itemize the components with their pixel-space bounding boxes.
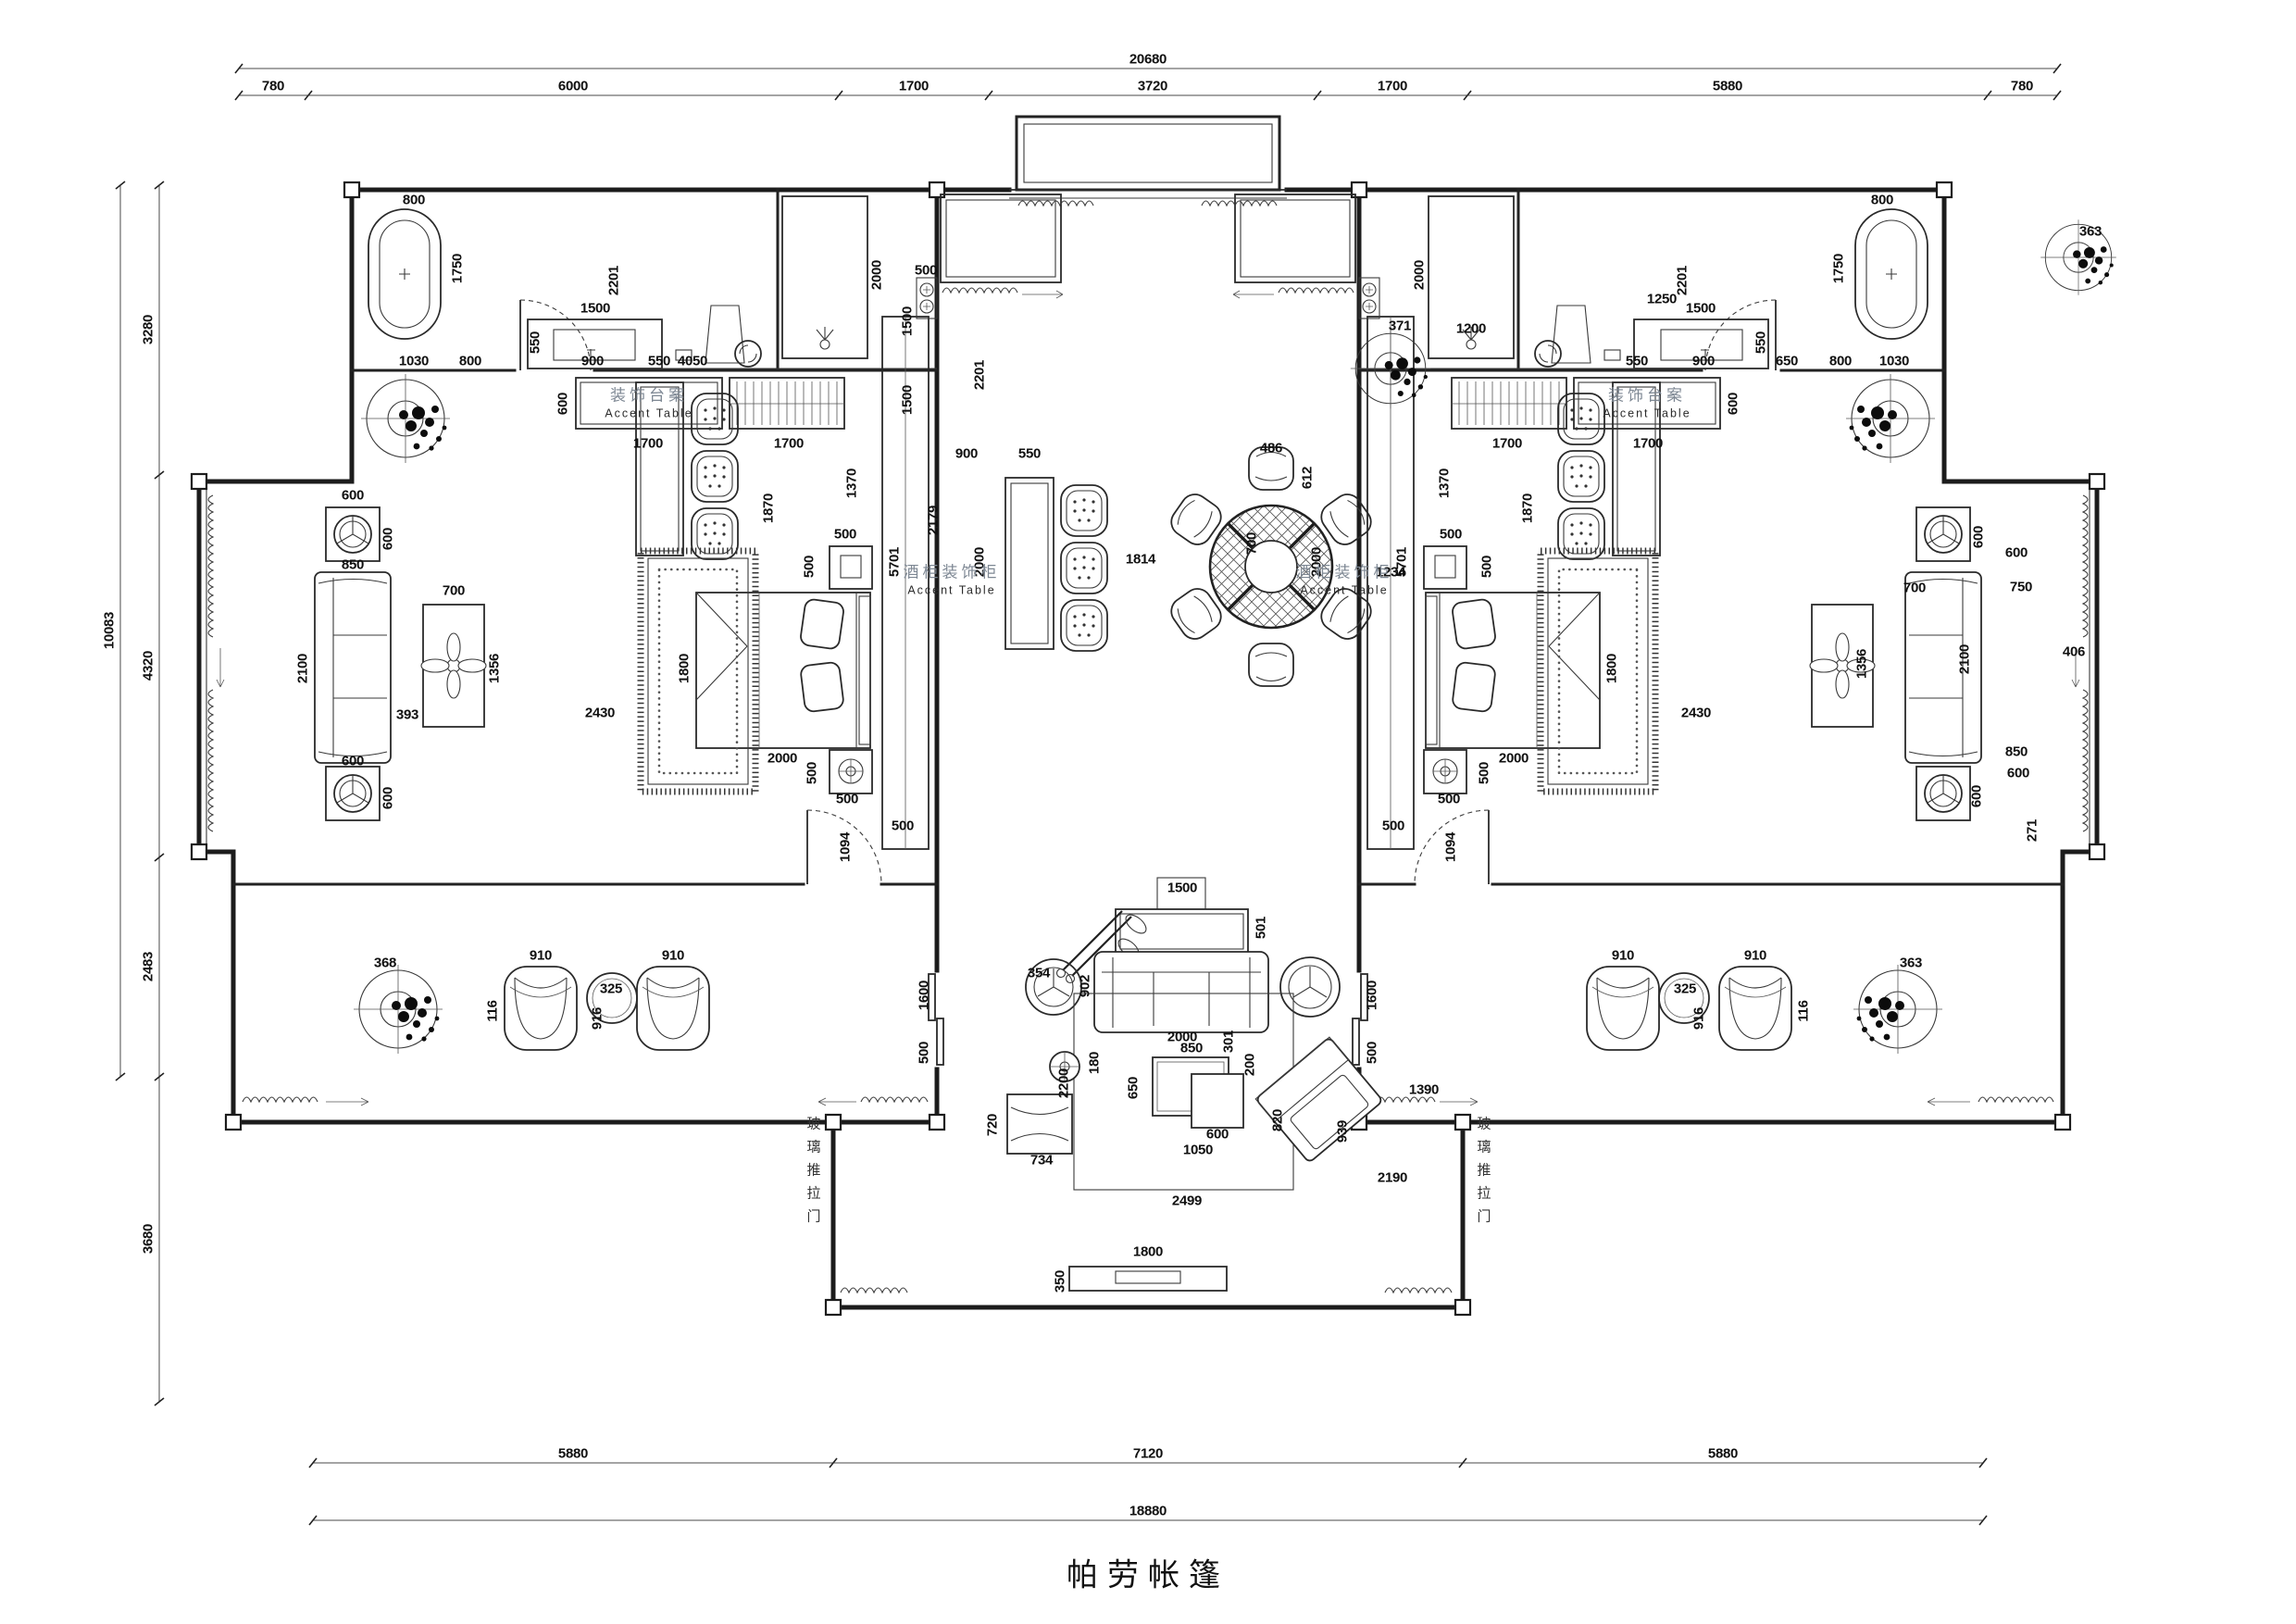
dimension-left_corridor: 500 [834,527,856,543]
dimension-lounge: 1050 [1183,1143,1213,1158]
dimension-left_wing: 910 [662,948,684,964]
dimension-right_bath: 650 [1776,354,1798,369]
dimension-left_bath: 1700 [633,436,663,452]
dimension-left_bath: 2000 [869,260,885,290]
dimension-terrace: 350 [1053,1270,1068,1293]
dimension-right_bed: 500 [1479,556,1495,578]
dimension-lounge: 354 [1028,966,1050,981]
dimension-left_corridor: 1094 [838,832,854,862]
dimension-right_bed: 2000 [1499,751,1529,767]
dimension-left_bed: 500 [836,792,858,807]
dimension-left_wing: 325 [600,981,622,997]
dimension-right_bay: 1356 [1854,649,1870,679]
dimension-left_bay: 1356 [487,654,503,683]
dimension-lounge: 850 [1180,1041,1203,1056]
dimension-left_chain: 4320 [141,651,156,681]
drawing-title: 帕劳帐篷 [1067,1550,1229,1595]
dimension-top_chain: 1700 [899,79,929,94]
dimension-left_chain: 3280 [141,315,156,344]
dimension-right_bath: 1500 [1686,301,1716,317]
dimension-right_bath: 550 [1753,331,1769,354]
dimension-left_bay: 600 [342,488,364,504]
dimension-center_hall: 2201 [972,360,988,390]
dimension-right_bath: 600 [1726,393,1741,415]
dimension-right_corridor: 1370 [1437,468,1453,498]
room-label: 酒柜装饰柜Accent Table [1296,559,1393,597]
dimension-left_chain: 10083 [102,612,118,649]
dimension-left_bath: 2201 [606,266,622,295]
dimension-top_chain: 780 [2011,79,2033,94]
dimension-lounge: 720 [985,1114,1001,1136]
dimension-left_bed: 500 [802,556,817,578]
dimension-lounge: 1390 [1409,1082,1439,1098]
dimension-right_bath: 363 [2079,224,2102,240]
room-label: 装饰台案Accent Table [1603,382,1691,420]
dimension-center_hall: 900 [955,446,978,462]
dimension-right_bay: 750 [2010,580,2032,595]
dimension-bottom_chain: 5880 [558,1446,588,1462]
dimension-lounge: 650 [1126,1077,1142,1099]
dimension-left_bath: 800 [403,193,425,208]
dimension-left_bay: 700 [443,583,465,599]
dimension-right_corridor: 1094 [1443,832,1459,862]
glass-sliding-door-label: 玻璃推拉门 [1474,1117,1493,1232]
dimension-right_bay: 600 [2005,545,2028,561]
dimension-right_corridor: 550 [1626,354,1648,369]
dimension-lounge: 180 [1087,1052,1103,1074]
dimension-left_wing: 916 [590,1007,605,1030]
dimension-lounge: 600 [1206,1127,1229,1143]
dimension-lounge: 2499 [1172,1193,1202,1209]
dimension-right_bay: 271 [2025,819,2040,842]
dimension-right_corridor: 500 [1440,527,1462,543]
dimension-center_hall: 1500 [900,306,916,336]
dimension-lounge: 820 [1270,1109,1286,1131]
dimension-lounge: 301 [1221,1031,1237,1053]
dimension-lounge: 1500 [1167,881,1197,896]
dimension-top_chain: 6000 [558,79,588,94]
dimension-left_bath: 550 [528,331,543,354]
dimension-left_corridor: 900 [581,354,604,369]
dimension-left_chain: 3680 [141,1224,156,1254]
dimension-bottom_chain: 18880 [1129,1504,1167,1519]
dimension-top_chain: 780 [262,79,284,94]
dimension-left_bed: 2430 [585,706,615,721]
annotation-layer: 2068078060001700372017005880780100833280… [0,0,2296,1624]
dimension-top_chain: 1700 [1378,79,1407,94]
dimension-terrace: 1800 [1133,1244,1163,1260]
dimension-left_bay: 600 [381,528,396,550]
dimension-right_bay: 600 [1969,785,1985,807]
dimension-right_bath: 800 [1829,354,1852,369]
dimension-right_bay: 700 [1903,581,1926,596]
dimension-right_bay: 600 [2007,766,2029,781]
dimension-lounge: 734 [1030,1153,1053,1168]
dimension-right_bath: 1750 [1831,254,1847,283]
dimension-bottom_chain: 7120 [1133,1446,1163,1462]
dimension-right_bay: 850 [2005,744,2028,760]
dimension-center_hall: 1814 [1126,552,1155,568]
dimension-lounge: 2200 [1056,1068,1072,1098]
dimension-right_bath: 1030 [1879,354,1909,369]
dimension-center_hall: 486 [1260,441,1282,456]
dimension-left_bay: 600 [381,787,396,809]
dimension-center_hall: 550 [1018,446,1041,462]
dimension-right_bay: 600 [1971,526,1987,548]
dimension-left_bath: 600 [555,393,571,415]
dimension-center_hall: 700 [1244,532,1260,555]
dimension-right_bay: 406 [2063,644,2085,660]
dimension-left_corridor: 5701 [887,547,903,577]
dimension-right_wing: 116 [1796,1000,1812,1021]
dimension-right_bed: 2430 [1681,706,1711,721]
room-label: 装饰台案Accent Table [605,382,693,420]
dimension-left_corridor: 2179 [926,506,942,535]
dimension-right_corridor: 1870 [1520,493,1536,523]
dimension-lounge: 501 [1254,917,1269,939]
dimension-top_chain: 5880 [1713,79,1742,94]
dimension-left_wing: 116 [485,1000,501,1021]
dimension-right_bath: 1250 [1647,292,1677,307]
dimension-right_bath: 2000 [1412,260,1428,290]
glass-sliding-door-label: 玻璃推拉门 [804,1117,823,1232]
dimension-left_bay: 850 [342,557,364,573]
dimension-left_bath: 1750 [450,254,466,283]
dimension-top_chain: 20680 [1129,52,1167,68]
dimension-right_corridor: 900 [1692,354,1715,369]
dimension-right_bath: 2201 [1675,266,1691,295]
dimension-lounge: 200 [1242,1054,1258,1076]
dimension-right_bath: 1200 [1456,321,1486,337]
dimension-left_wing: 1600 [917,981,932,1010]
dimension-right_wing: 325 [1674,981,1696,997]
dimension-left_wing: 910 [530,948,552,964]
dimension-right_bed: 1800 [1604,654,1620,683]
dimension-right_bath: 371 [1389,319,1411,334]
dimension-left_bath: 4050 [678,354,707,369]
dimension-center_hall: 500 [915,263,937,279]
dimension-left_bath: 1700 [774,436,804,452]
dimension-bottom_chain: 5880 [1708,1446,1738,1462]
dimension-lounge: 939 [1335,1120,1351,1143]
dimension-right_wing: 910 [1744,948,1766,964]
dimension-right_bath: 1700 [1633,436,1663,452]
dimension-right_wing: 500 [1365,1042,1380,1064]
dimension-right_wing: 363 [1900,956,1922,971]
dimension-right_corridor: 500 [1382,818,1404,834]
dimension-right_bed: 500 [1477,762,1492,784]
dimension-center_hall: 1500 [900,385,916,415]
dimension-left_bed: 2000 [767,751,797,767]
dimension-right_bay: 2100 [1957,644,1973,674]
dimension-left_bay: 600 [342,754,364,769]
dimension-left_corridor: 1370 [844,468,860,498]
dimension-lounge: 902 [1078,975,1093,997]
dimension-left_bed: 1800 [677,654,693,683]
dimension-right_wing: 910 [1612,948,1634,964]
dimension-right_bath: 800 [1871,193,1893,208]
dimension-left_wing: 500 [917,1042,932,1064]
dimension-right_wing: 1600 [1365,981,1380,1010]
dimension-left_bay: 393 [396,707,418,723]
dimension-left_bath: 800 [459,354,481,369]
dimension-left_corridor: 550 [648,354,670,369]
dimension-right_wing: 916 [1691,1007,1707,1030]
dimension-left_bay: 2100 [295,654,311,683]
floor-plan-page: 2068078060001700372017005880780100833280… [0,0,2296,1624]
dimension-left_wing: 368 [374,956,396,971]
dimension-center_hall: 612 [1300,467,1316,489]
dimension-left_bed: 500 [805,762,820,784]
dimension-left_corridor: 1870 [761,493,777,523]
dimension-left_bath: 1030 [399,354,429,369]
dimension-lounge: 2190 [1378,1170,1407,1186]
dimension-left_corridor: 500 [892,818,914,834]
dimension-left_chain: 2483 [141,952,156,981]
dimension-left_bath: 1500 [580,301,610,317]
dimension-right_bed: 500 [1438,792,1460,807]
room-label: 酒柜装饰柜Accent Table [904,559,1001,597]
dimension-top_chain: 3720 [1138,79,1167,94]
dimension-right_bath: 1700 [1492,436,1522,452]
